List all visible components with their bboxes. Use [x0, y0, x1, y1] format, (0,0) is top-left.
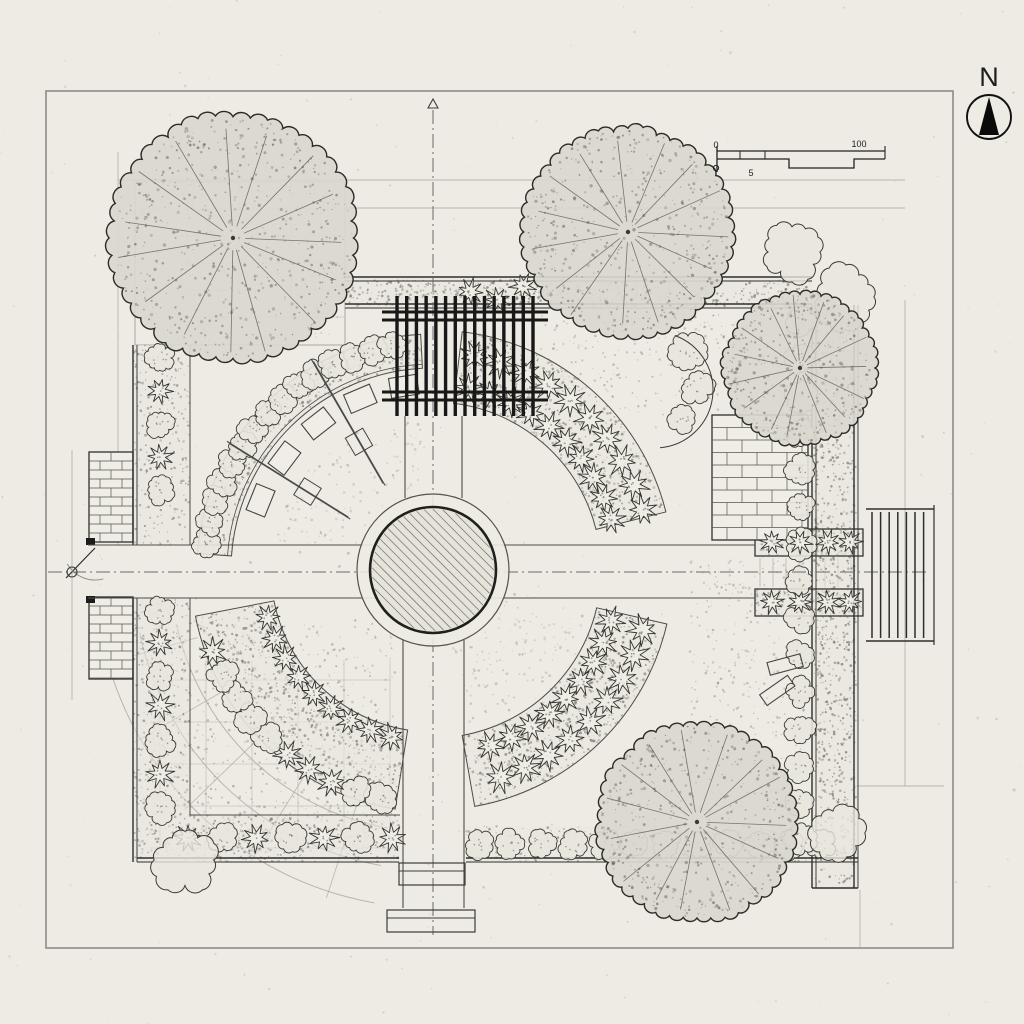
- tree-northwest: [106, 111, 358, 363]
- tree-north: [520, 124, 736, 340]
- central-pond: [357, 494, 509, 646]
- scale-zero-label: 0: [713, 140, 718, 150]
- scale-hundred-label: 100: [851, 139, 866, 149]
- garden-plan-page: N 0 5 100: [0, 0, 1024, 1024]
- compass-north-label: N: [979, 62, 999, 92]
- scale-five-label: 5: [748, 168, 753, 178]
- garden-plan-drawing: N 0 5 100: [0, 0, 1024, 1024]
- pergola: [382, 296, 548, 416]
